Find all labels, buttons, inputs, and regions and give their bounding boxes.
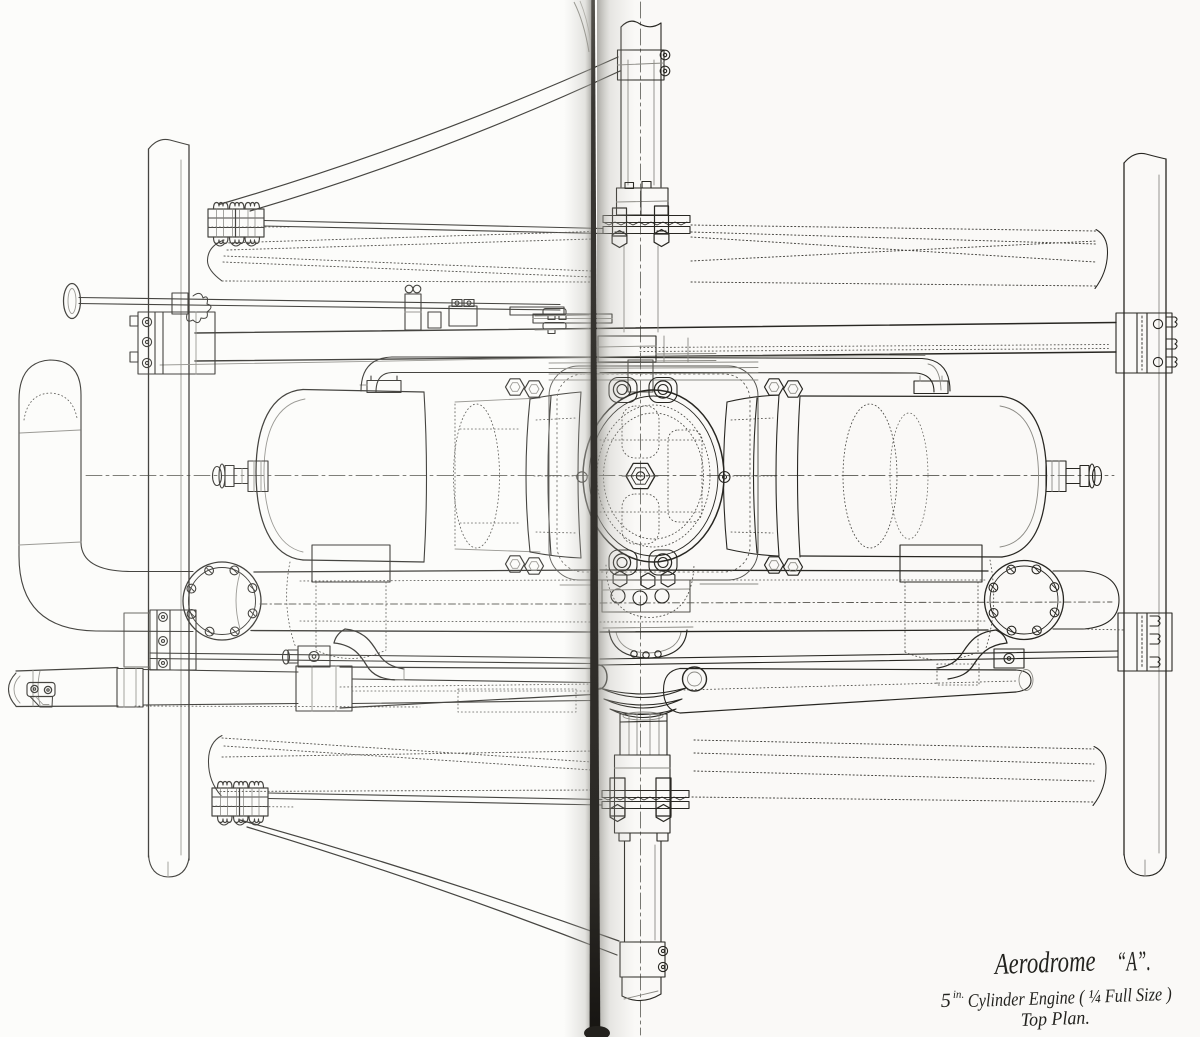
svg-text:Aerodrome: Aerodrome bbox=[993, 944, 1097, 981]
svg-text:Top Plan.: Top Plan. bbox=[1020, 1008, 1090, 1031]
svg-text:5: 5 bbox=[940, 990, 951, 1012]
svg-text:in.: in. bbox=[953, 989, 965, 1001]
svg-text:“A”.: “A”. bbox=[1116, 946, 1151, 978]
